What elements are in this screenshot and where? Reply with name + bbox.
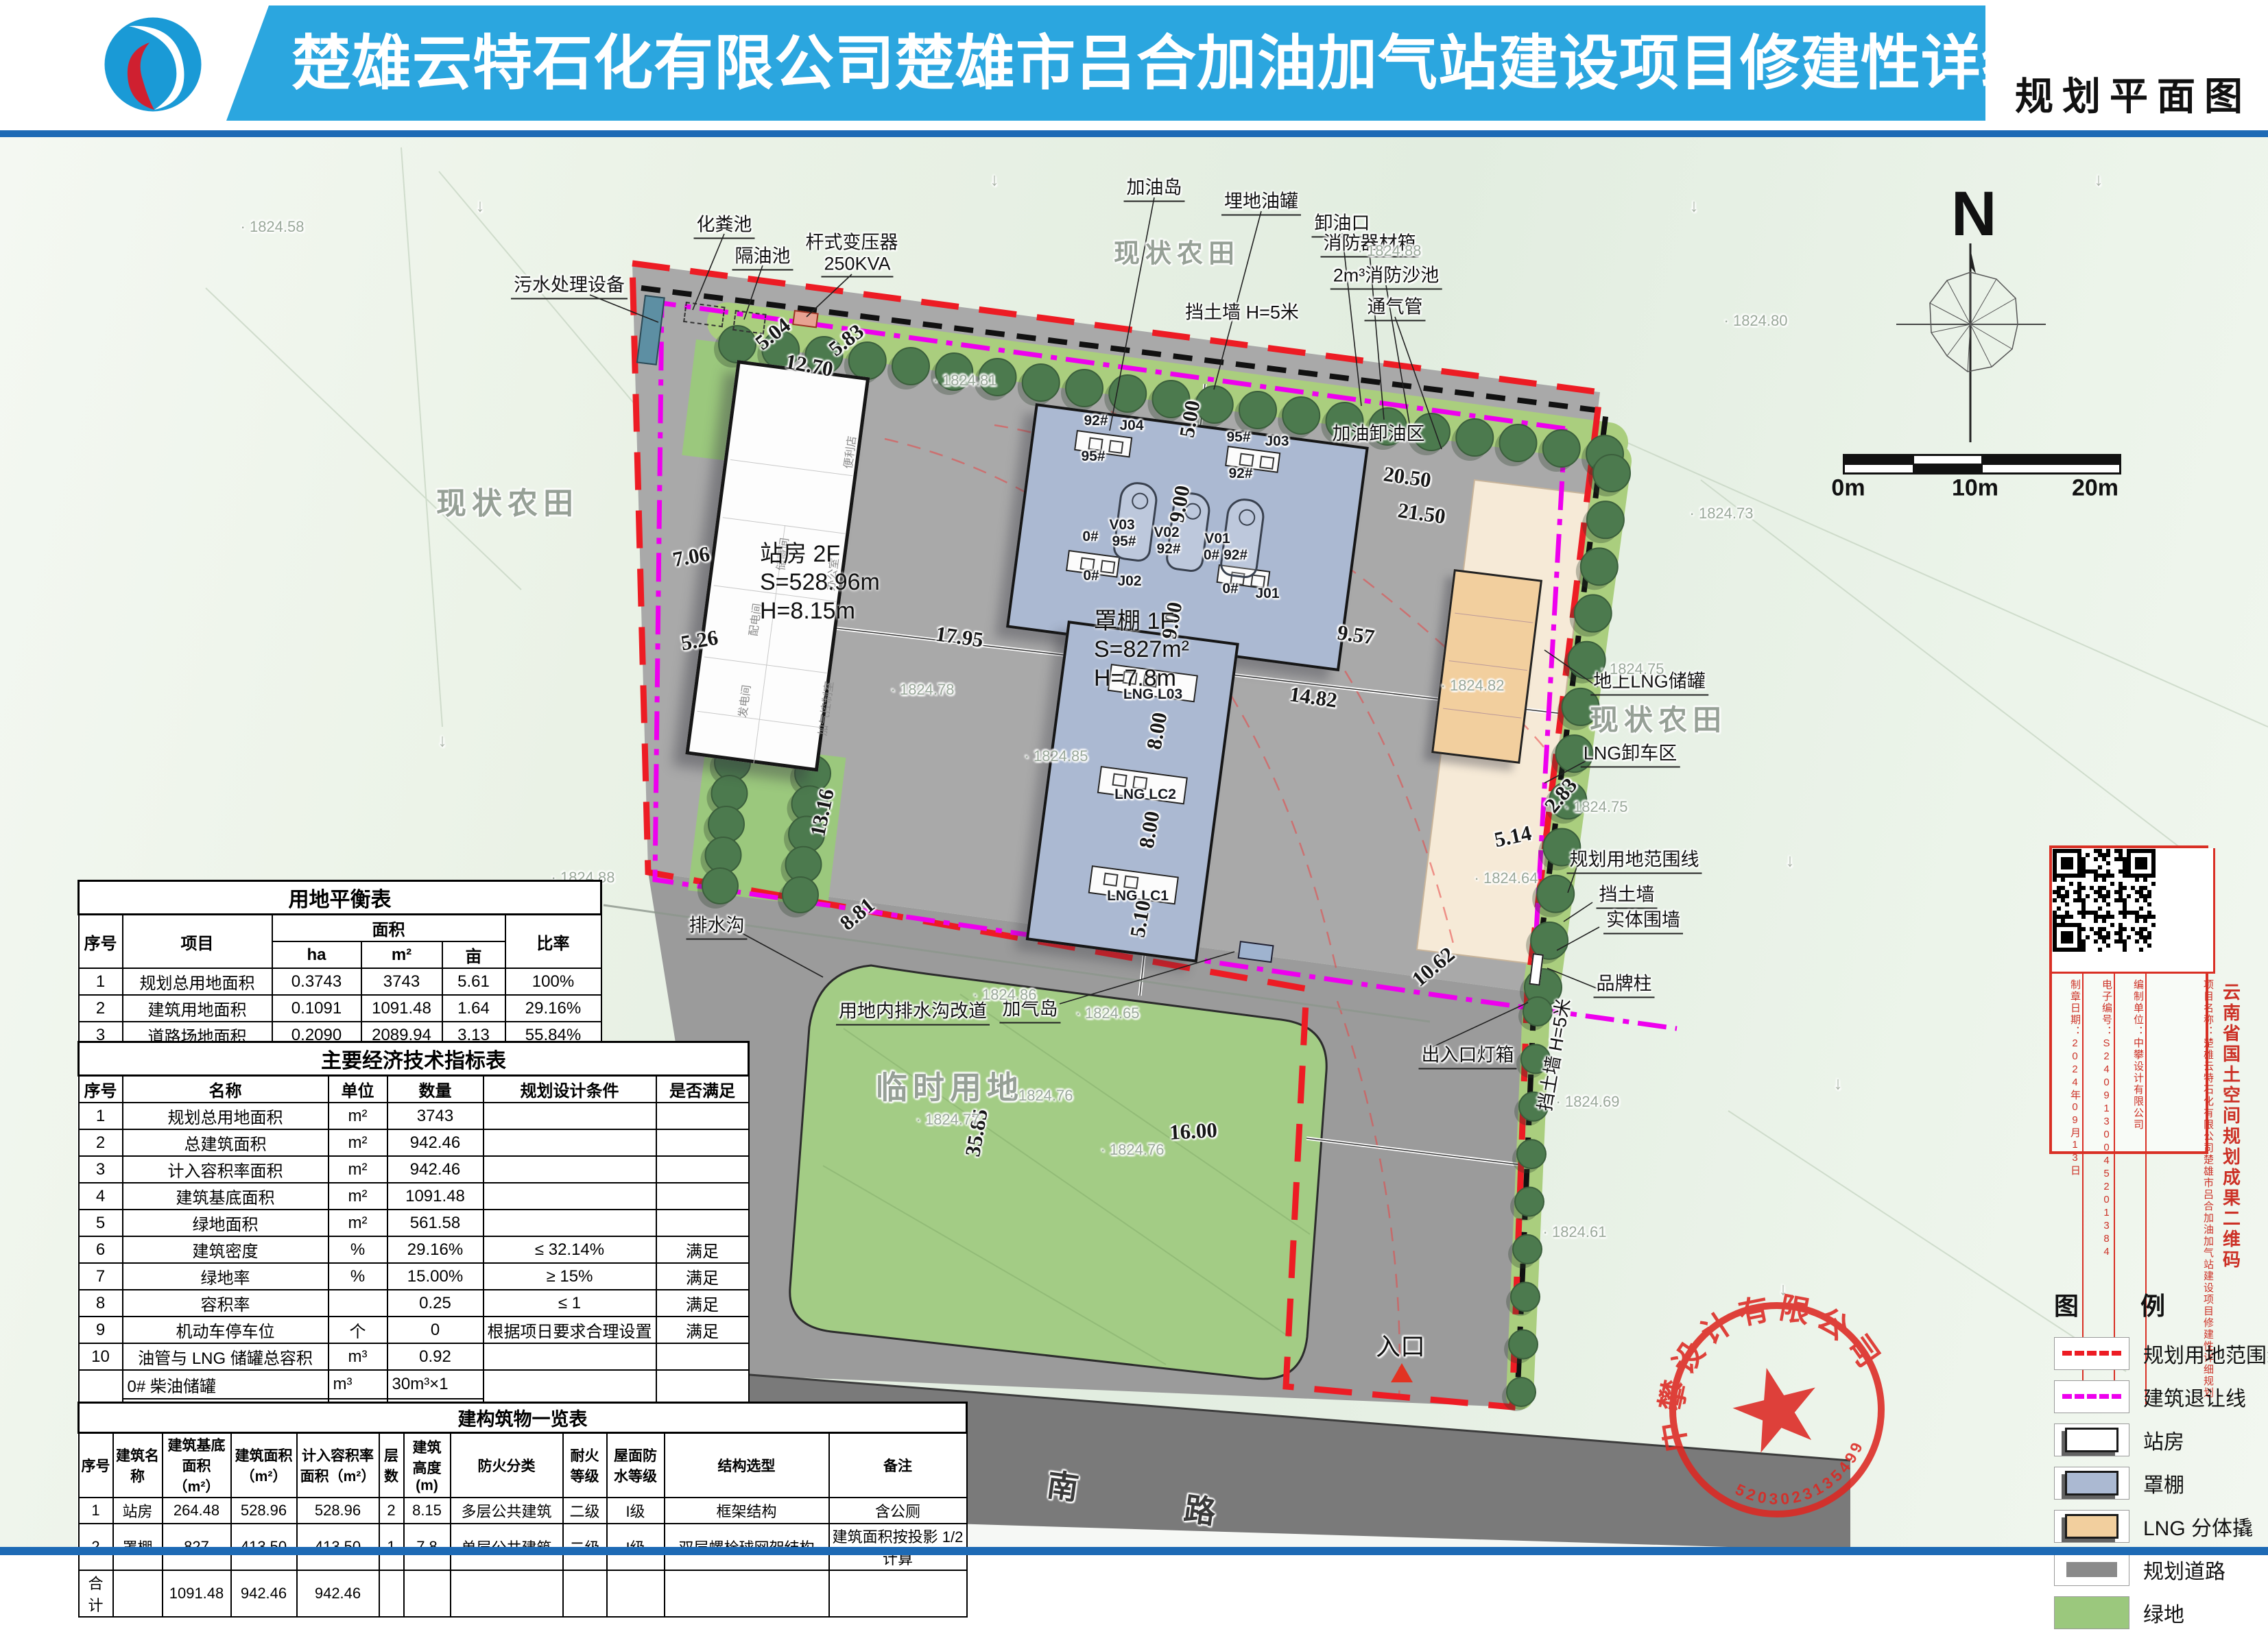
company-logo xyxy=(88,8,222,121)
legend-swatch-white-box xyxy=(2054,1423,2129,1456)
tree-icon xyxy=(1196,386,1233,423)
table-cell: 含公厕 xyxy=(829,1498,967,1524)
table-cell: 561.58 xyxy=(387,1210,484,1236)
scale-0m: 0m xyxy=(1831,475,1865,502)
table-cell: 1091.48 xyxy=(361,995,442,1022)
table-cell: 建筑用地面积 xyxy=(123,995,272,1022)
table-cell: 序号 xyxy=(79,1076,123,1103)
table-cell: 15.00% xyxy=(387,1263,484,1290)
table-cell xyxy=(379,1570,404,1617)
header-rule xyxy=(0,130,2268,137)
table-cell xyxy=(829,1570,967,1617)
table-cell: 机动车停车位 xyxy=(123,1317,329,1343)
legend-label: 建筑退让线 xyxy=(2143,1382,2246,1412)
table-cell xyxy=(665,1570,829,1617)
scale-bar xyxy=(1843,454,2121,474)
table-cell xyxy=(607,1570,665,1617)
table-cell: m² xyxy=(329,1156,387,1183)
tree-icon xyxy=(783,877,818,913)
table-cell: 容积率 xyxy=(123,1290,329,1317)
table-cell: 3743 xyxy=(361,968,442,995)
legend-item: 绿地 xyxy=(2054,1591,2263,1634)
table-cell: 264.48 xyxy=(163,1498,231,1524)
canopy-label: 罩棚 1FS=827m²H=7.8m xyxy=(1094,608,1189,693)
table-cell: 0 xyxy=(387,1317,484,1343)
pump-icon xyxy=(1100,560,1115,573)
tree-icon xyxy=(1109,375,1146,412)
table-cell: m² xyxy=(329,1129,387,1156)
tree-icon xyxy=(1523,997,1552,1026)
tree-icon xyxy=(1549,782,1586,819)
table-cell: ≥ 15% xyxy=(484,1263,656,1290)
table-cell: 942.46 xyxy=(387,1156,484,1183)
table-cell: m² xyxy=(329,1183,387,1210)
table-cell: 单位 xyxy=(329,1076,387,1103)
legend-swatch-red-dash xyxy=(2054,1337,2129,1370)
tree-icon xyxy=(712,776,748,811)
table-cell: ha xyxy=(272,941,361,968)
table-cell: 建筑面积（m²） xyxy=(231,1433,297,1498)
table-cell: 多层公共建筑 xyxy=(451,1498,563,1524)
tree-icon xyxy=(1587,501,1624,538)
page-title: 楚雄云特石化有限公司楚雄市吕合加油加气站建设项目修建性详细规划 xyxy=(291,15,2162,101)
scale-20m: 20m xyxy=(2072,475,2118,502)
header: 楚雄云特石化有限公司楚雄市吕合加油加气站建设项目修建性详细规划 规划平面图 xyxy=(0,0,2268,130)
tree-icon xyxy=(1370,408,1407,445)
pump-icon xyxy=(1132,776,1147,789)
pump-icon xyxy=(1239,453,1254,467)
table-cell: 用地平衡表 xyxy=(79,881,601,915)
table-cell: 建筑高度(m) xyxy=(404,1433,451,1498)
table-cell: 规划总用地面积 xyxy=(123,968,272,995)
tree-icon xyxy=(1023,364,1060,401)
table-cell: 数量 xyxy=(387,1076,484,1103)
table-cell: 0.92 xyxy=(387,1343,484,1370)
tree-icon xyxy=(1555,735,1592,772)
pump-icon xyxy=(1108,440,1123,453)
pump-icon xyxy=(1112,773,1127,787)
legend-swatch-tan-box xyxy=(2054,1510,2129,1543)
legend-item: 罩棚 xyxy=(2054,1461,2263,1504)
table-cell: 0.25 xyxy=(387,1290,484,1317)
tree-icon xyxy=(1239,392,1276,429)
table-cell: 7 xyxy=(79,1263,123,1290)
table-cell: 备注 xyxy=(829,1433,967,1498)
table-cell: 5.61 xyxy=(442,968,505,995)
tank-valve-icon xyxy=(1238,508,1256,527)
legend-swatch-magenta-dash xyxy=(2054,1380,2129,1413)
tree-icon xyxy=(1519,1092,1548,1121)
table-cell: 总建筑面积 xyxy=(123,1129,329,1156)
tree-icon xyxy=(1500,424,1537,461)
table-cell: m² xyxy=(329,1210,387,1236)
table-cell: 100% xyxy=(505,968,601,995)
table-cell: 耐火等级 xyxy=(563,1433,607,1498)
oil-separator-box xyxy=(732,310,767,335)
station-label: 站房 2FS=528.96mH=8.15m xyxy=(760,540,880,625)
sheet-name-label: 规划平面图 xyxy=(2015,66,2252,121)
table-cell: 屋面防水等级 xyxy=(607,1433,665,1498)
legend-label: 罩棚 xyxy=(2143,1468,2184,1498)
table-cell: 1091.48 xyxy=(163,1570,231,1617)
table-cell: 满足 xyxy=(656,1263,749,1290)
table-cell xyxy=(484,1103,656,1129)
table-cell: 0.1091 xyxy=(272,995,361,1022)
legend-label: LNG 分体撬 xyxy=(2143,1511,2253,1541)
table-cell: 名称 xyxy=(123,1076,329,1103)
legend-swatch-blue-box xyxy=(2054,1467,2129,1500)
table-cell: 结构选型 xyxy=(665,1433,829,1498)
temporary-land-area xyxy=(790,965,1326,1379)
table-cell: 面积 xyxy=(272,915,505,942)
table-cell xyxy=(656,1156,749,1183)
tree-icon xyxy=(706,837,741,873)
tree-icon xyxy=(1568,642,1605,679)
table-cell xyxy=(656,1343,749,1370)
table-cell: ≤ 32.14% xyxy=(484,1236,656,1263)
tree-icon xyxy=(1515,1188,1544,1216)
table-cell: 528.96 xyxy=(231,1498,297,1524)
table-cell: m² xyxy=(361,941,442,968)
table-cell: 满足 xyxy=(656,1236,749,1263)
table-cell: 根据项日要求合理设置 xyxy=(484,1317,656,1343)
table-cell: 6 xyxy=(79,1236,123,1263)
table-cell xyxy=(484,1156,656,1183)
table-cell: 8 xyxy=(79,1290,123,1317)
table-cell xyxy=(563,1570,607,1617)
table-cell: 1 xyxy=(79,1103,123,1129)
pump-icon xyxy=(1088,437,1103,451)
tree-icon xyxy=(1543,828,1580,865)
table-cell: 绿地率 xyxy=(123,1263,329,1290)
buildings-table: 建构筑物一览表序号建筑名称建筑基底面积（m²）建筑面积（m²）计入容积率面积（m… xyxy=(77,1402,968,1618)
tree-icon xyxy=(1456,419,1493,456)
table-cell: 942.46 xyxy=(387,1129,484,1156)
table-cell: 10 xyxy=(79,1343,123,1370)
tree-icon xyxy=(1326,403,1363,440)
tree-icon xyxy=(702,868,738,904)
table-cell: 8.15 xyxy=(404,1498,451,1524)
qr-code xyxy=(2052,848,2215,972)
table-cell: 1 xyxy=(79,968,123,995)
tree-icon xyxy=(806,337,843,374)
tree-icon xyxy=(1543,430,1580,467)
tree-icon xyxy=(935,353,972,390)
table-cell: 1 xyxy=(79,1498,113,1524)
tree-icon xyxy=(1513,1235,1542,1264)
table-cell: 规划总用地面积 xyxy=(123,1103,329,1129)
pump-icon xyxy=(1079,557,1095,571)
tree-icon xyxy=(1066,370,1103,407)
tree-icon xyxy=(1511,1282,1540,1311)
table-cell: 942.46 xyxy=(297,1570,379,1617)
table-cell: 计入容积率面积（m²） xyxy=(297,1433,379,1498)
table-cell: 防火分类 xyxy=(451,1433,563,1498)
table-cell: 项目 xyxy=(123,915,272,969)
table-cell: ≤ 1 xyxy=(484,1290,656,1317)
tank-valve-icon xyxy=(1131,492,1149,510)
table-cell: 框架结构 xyxy=(665,1498,829,1524)
table-cell: 9 xyxy=(79,1317,123,1343)
tree-icon xyxy=(1517,1140,1546,1168)
legend-label: 绿地 xyxy=(2143,1598,2184,1628)
table-cell xyxy=(656,1210,749,1236)
north-letter: N xyxy=(1951,179,1996,249)
table-cell: 2 xyxy=(79,995,123,1022)
tree-icon xyxy=(708,806,744,842)
legend-item: LNG 分体撬 xyxy=(2054,1504,2263,1548)
table-cell: 个 xyxy=(329,1317,387,1343)
table-cell: 29.16% xyxy=(387,1236,484,1263)
table-cell: 2 xyxy=(79,1129,123,1156)
tree-icon xyxy=(1413,413,1450,450)
table-cell: 油管与 LNG 储罐总容积 xyxy=(123,1343,329,1370)
table-cell xyxy=(484,1210,656,1236)
tree-icon xyxy=(979,359,1016,396)
table-cell: m³ xyxy=(329,1370,387,1399)
tree-icon xyxy=(1282,397,1320,434)
table-cell: % xyxy=(329,1236,387,1263)
table-cell: 序号 xyxy=(79,1433,113,1498)
table-cell xyxy=(656,1183,749,1210)
table-cell: 0# 柴油储罐 xyxy=(123,1370,329,1399)
table-cell: 满足 xyxy=(656,1290,749,1317)
table-cell xyxy=(484,1129,656,1156)
legend-label: 规划道路 xyxy=(2143,1554,2225,1585)
table-cell: 是否满足 xyxy=(656,1076,749,1103)
table-cell: 亩 xyxy=(442,941,505,968)
tree-icon xyxy=(1507,1378,1536,1406)
table-cell: 建筑密度 xyxy=(123,1236,329,1263)
table-cell: m³ xyxy=(329,1343,387,1370)
table-cell: 2 xyxy=(379,1498,404,1524)
tree-icon xyxy=(1509,1330,1538,1359)
table-cell: 30m³×1 xyxy=(387,1370,484,1399)
pump-icon xyxy=(1123,875,1138,889)
table-cell xyxy=(329,1290,387,1317)
tree-icon xyxy=(1562,688,1599,725)
table-cell xyxy=(404,1570,451,1617)
tree-icon xyxy=(762,331,799,368)
table-cell: 0.3743 xyxy=(272,968,361,995)
legend-swatch-road xyxy=(2054,1553,2129,1586)
legend-label: 站房 xyxy=(2143,1425,2184,1455)
table-cell xyxy=(656,1129,749,1156)
pump-icon xyxy=(1103,873,1118,887)
table-cell: 1091.48 xyxy=(387,1183,484,1210)
table-cell: 层数 xyxy=(379,1433,404,1498)
tree-icon xyxy=(892,348,929,385)
tree-icon xyxy=(1593,455,1630,492)
table-cell: 满足 xyxy=(656,1317,749,1343)
entrance-arrow xyxy=(1391,1363,1413,1382)
tree-icon xyxy=(1575,595,1612,632)
legend-title: 图 例 xyxy=(2054,1286,2263,1322)
table-cell: % xyxy=(329,1263,387,1290)
table-cell: 528.96 xyxy=(297,1498,379,1524)
legend-swatch-green xyxy=(2054,1596,2129,1629)
table-cell xyxy=(484,1183,656,1210)
tree-icon xyxy=(1153,381,1190,418)
tree-icon xyxy=(1581,548,1618,585)
table-cell: 建筑基底面积 xyxy=(123,1183,329,1210)
north-compass: N xyxy=(1888,175,2053,470)
table-cell: 29.16% xyxy=(505,995,601,1022)
tree-icon xyxy=(1537,876,1574,913)
tree-icon xyxy=(849,342,886,379)
table-cell: 4 xyxy=(79,1183,123,1210)
table-cell: 建构筑物一览表 xyxy=(79,1403,967,1433)
scale-10m: 10m xyxy=(1952,475,1998,502)
tree-icon xyxy=(1521,1044,1550,1073)
table-cell: 3743 xyxy=(387,1103,484,1129)
table-cell: 1.64 xyxy=(442,995,505,1022)
table-cell: 站房 xyxy=(113,1498,163,1524)
table-cell: 绿地面积 xyxy=(123,1210,329,1236)
legend-item: 站房 xyxy=(2054,1418,2263,1461)
footer-rule xyxy=(0,1547,2268,1555)
table-cell: 序号 xyxy=(79,915,123,969)
room-label: 便利店 xyxy=(839,435,859,470)
legend-item: 规划用地范围线 xyxy=(2054,1332,2263,1375)
table-cell: I级 xyxy=(607,1498,665,1524)
table-cell xyxy=(656,1103,749,1129)
transformer-box xyxy=(792,310,819,328)
table-cell: 合计 xyxy=(79,1570,113,1617)
legend-label: 规划用地范围线 xyxy=(2143,1338,2268,1369)
pump-icon xyxy=(1250,574,1265,588)
qr-panel: 云南省国土空间规划成果二维码 制章日期：2024年09月13日电子编号：S240… xyxy=(2049,845,2208,1154)
room-label: 发电间 xyxy=(733,684,754,719)
legend-item: 建筑退让线 xyxy=(2054,1375,2263,1418)
table-cell: m² xyxy=(329,1103,387,1129)
table-cell: 942.46 xyxy=(231,1570,297,1617)
table-cell xyxy=(451,1570,563,1617)
table-cell xyxy=(484,1343,656,1370)
pump-icon xyxy=(1259,455,1274,469)
table-cell: 计入容积率面积 xyxy=(123,1156,329,1183)
tank-valve-icon xyxy=(1184,502,1202,520)
table-cell: 规划设计条件 xyxy=(484,1076,656,1103)
table-cell: 建筑名称 xyxy=(113,1433,163,1498)
table-cell: 建筑基底面积（m²） xyxy=(163,1433,231,1498)
legend: 图 例 规划用地范围线建筑退让线站房罩棚LNG 分体撬规划道路绿地 xyxy=(2054,1286,2263,1634)
table-cell: 3 xyxy=(79,1156,123,1183)
table-cell: 二级 xyxy=(563,1498,607,1524)
table-cell: 5 xyxy=(79,1210,123,1236)
table-cell: 比率 xyxy=(505,915,601,969)
table-cell xyxy=(113,1570,163,1617)
table-cell: 主要经济技术指标表 xyxy=(79,1042,749,1076)
